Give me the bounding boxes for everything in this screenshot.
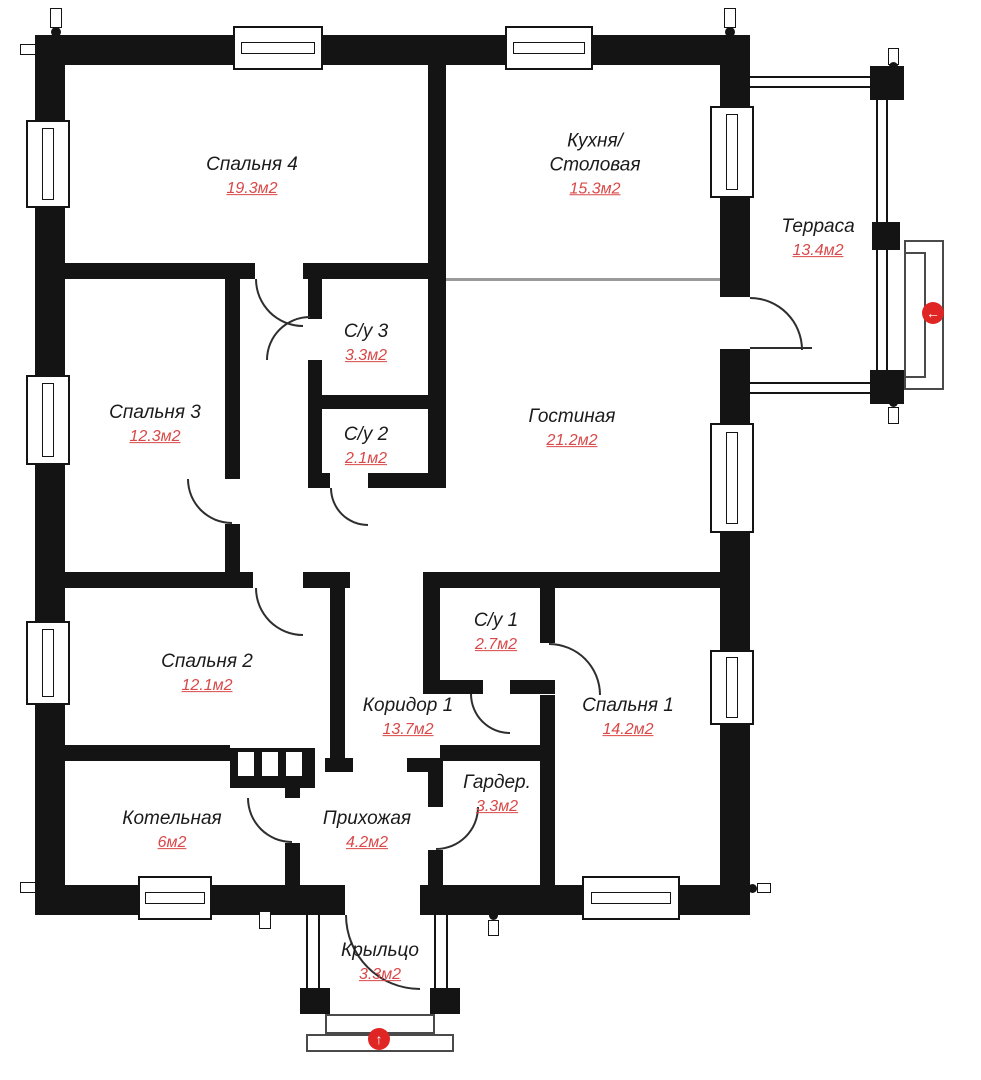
room-label-bedroom-4: Спальня 4 19.3м2 [206,153,298,199]
room-area: 12.3м2 [109,427,201,447]
room-area: 14.2м2 [582,720,674,740]
room-label-kitchen-dining: Кухня/ Столовая 15.3м2 [530,129,660,199]
room-name: Кухня/ Столовая [530,129,660,177]
wall-mid-horizontal-left [65,572,253,588]
terrace-railing-bottom [750,382,878,394]
window-kitchen-top [505,26,593,70]
room-label-bathroom-3: С/у 3 3.3м2 [344,320,388,366]
room-area: 2.1м2 [344,449,388,469]
wall-wardrobe-left-lower [428,850,443,885]
wall-bedroom1-left-upper [540,588,555,643]
wall-bedroom2-right [330,588,345,758]
room-label-hallway: Прихожая 4.2м2 [323,807,411,853]
door-arc-terrace [750,297,803,350]
wall-mid-horizontal-center [303,572,350,588]
window-sash [513,42,585,53]
room-name: Котельная [122,807,221,831]
room-area: 21.2м2 [529,431,616,451]
room-name: Коридор 1 [363,694,453,718]
room-area: 6м2 [122,833,221,853]
room-area: 13.4м2 [781,241,854,261]
room-name: С/у 2 [344,423,388,447]
window-sash [241,42,315,53]
terrace-post-middle [872,222,900,250]
room-name: Спальня 2 [161,650,253,674]
downpipe-marker [259,911,271,929]
room-label-boiler-room: Котельная 6м2 [122,807,221,853]
window-sash [42,383,53,457]
room-label-corridor-1: Коридор 1 13.7м2 [363,694,453,740]
wall-wardrobe-top [440,745,555,761]
hatch-vent [262,752,278,776]
room-label-porch: Крыльцо 3.3м2 [341,939,419,985]
wall-bath2-bottom-right [368,473,428,488]
entrance-arrow-up-icon: ↑ [376,1032,383,1046]
room-label-bedroom-1: Спальня 1 14.2м2 [582,694,674,740]
wall-bath-left-lower [308,360,322,473]
room-label-bathroom-1: С/у 1 2.7м2 [474,609,518,655]
room-area: 12.1м2 [161,676,253,696]
window-living-right [710,423,754,533]
downpipe-dot [889,398,898,407]
wall-boiler-top [65,745,230,761]
downpipe-marker [20,882,36,893]
terrace-post-top [870,66,904,100]
downpipe-marker [20,44,36,55]
room-label-bathroom-2: С/у 2 2.1м2 [344,423,388,469]
window-sash [726,114,737,190]
downpipe-marker [888,407,899,424]
wall-hallway-left-upper [285,788,300,798]
window-sash [145,892,205,903]
downpipe-marker [488,920,499,936]
window-kitchen-right [710,106,754,198]
wall-bath3-left-upper [308,279,322,319]
room-area: 3.3м2 [463,797,531,817]
porch-railing-right [434,915,448,993]
window-sash [42,128,53,200]
room-name: Гардер. [463,771,531,795]
room-area: 3.3м2 [341,965,419,985]
downpipe-dot [258,901,268,911]
room-area: 3.3м2 [344,346,388,366]
downpipe-marker [724,8,736,28]
downpipe-marker [50,8,62,28]
kitchen-living-separator-line [446,278,720,281]
window-sash [591,892,672,903]
porch-post-right [430,988,460,1014]
door-arc-bath3 [266,316,310,360]
room-label-bedroom-2: Спальня 2 12.1м2 [161,650,253,696]
porch-door-opening [345,882,420,918]
window-sash [726,432,737,523]
terrace-railing-top [750,76,878,88]
downpipe-dot [35,45,45,55]
window-bedroom1-right [710,650,754,725]
wall-bath2-bottom-left [308,473,330,488]
wall-bath1-bottom-left [423,680,483,694]
downpipe-dot [489,911,498,920]
room-area: 2.7м2 [474,635,518,655]
room-name: С/у 3 [344,320,388,344]
door-arc-bedroom3 [187,479,232,524]
wall-bedroom4-bottom-left [65,263,255,279]
hatch-vent [238,752,254,776]
window-bedroom4-left [26,120,70,208]
wall-bedroom3-right-upper [225,279,240,479]
downpipe-marker [757,883,771,893]
entrance-arrow-left-icon: ← [926,306,940,320]
room-name: Терраса [781,215,854,239]
room-area: 13.7м2 [363,720,453,740]
room-area: 4.2м2 [323,833,411,853]
room-label-wardrobe: Гардер. 3.3м2 [463,771,531,817]
exterior-wall-top [35,35,750,65]
wall-hallway-top-left [325,758,353,772]
wall-bath3-bath2-divider [322,395,428,409]
room-name: Спальня 4 [206,153,298,177]
wall-bedroom3-right-lower [225,524,240,572]
wall-kitchen-left [428,35,446,488]
wall-mid-horizontal-right [423,572,720,588]
room-name: Прихожая [323,807,411,831]
wall-bedroom4-bottom-right [303,263,428,279]
door-arc-bedroom2 [255,588,303,636]
downpipe-dot [725,27,735,37]
floor-plan: ← ↑ Спальня 4 19.3м2 Кухня/ Столовая 15.… [0,0,981,1080]
wall-bath1-left [423,588,440,688]
downpipe-dot [748,884,757,893]
downpipe-dot [889,62,898,71]
wall-bedroom1-left-lower [540,695,555,885]
window-boiler-bottom [138,876,212,920]
room-name: Гостиная [529,405,616,429]
hatch-vent [286,752,302,776]
entrance-marker-porch: ↑ [368,1028,390,1050]
room-label-living-room: Гостиная 21.2м2 [529,405,616,451]
door-arc-bath2 [330,488,368,526]
room-name: Спальня 1 [582,694,674,718]
room-name: С/у 1 [474,609,518,633]
room-label-terrace: Терраса 13.4м2 [781,215,854,261]
window-bedroom3-left [26,375,70,465]
room-name: Спальня 3 [109,401,201,425]
entrance-marker-terrace: ← [922,302,944,324]
window-bedroom1-bottom [582,876,680,920]
downpipe-dot [51,27,61,37]
door-arc-boiler [247,798,292,843]
window-sash [726,657,737,718]
room-label-bedroom-3: Спальня 3 12.3м2 [109,401,201,447]
porch-railing-left [306,915,320,993]
door-leaf-terrace [750,347,812,349]
terrace-door-opening [718,297,752,349]
window-bedroom4-top [233,26,323,70]
door-arc-bath1 [470,694,510,734]
room-area: 19.3м2 [206,179,298,199]
window-sash [42,629,53,698]
room-area: 15.3м2 [530,179,660,199]
wall-wardrobe-left-upper [428,761,443,807]
terrace-post-bottom [870,370,904,404]
door-arc-bedroom1 [549,643,601,695]
window-bedroom2-left [26,621,70,705]
room-name: Крыльцо [341,939,419,963]
downpipe-dot [36,883,46,893]
wall-hallway-left-lower [285,843,300,885]
porch-post-left [300,988,330,1014]
